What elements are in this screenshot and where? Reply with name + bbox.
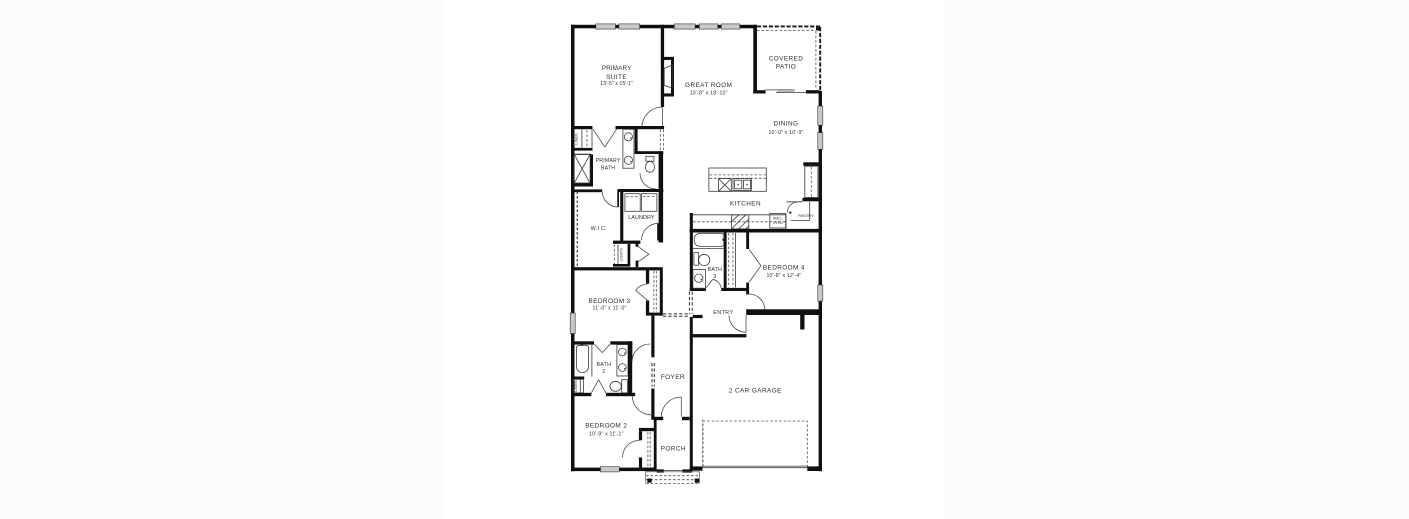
svg-text:BATH: BATH <box>708 267 723 273</box>
svg-text:PRIMARY: PRIMARY <box>602 65 632 72</box>
svg-text:OVEN: OVEN <box>773 221 783 225</box>
svg-text:BATH: BATH <box>601 165 615 171</box>
svg-text:SUITE: SUITE <box>606 74 627 81</box>
svg-text:2 CAR GARAGE: 2 CAR GARAGE <box>729 387 782 394</box>
svg-text:2: 2 <box>602 369 605 375</box>
svg-text:PATIO: PATIO <box>776 64 796 71</box>
svg-text:BATH: BATH <box>596 362 611 368</box>
svg-text:COVERED: COVERED <box>769 55 804 62</box>
svg-text:LINEN: LINEN <box>574 380 578 392</box>
svg-text:10'-0" x 10'-9": 10'-0" x 10'-9" <box>769 130 804 136</box>
svg-text:PORCH: PORCH <box>661 446 686 453</box>
svg-text:PRIMARY: PRIMARY <box>596 158 621 164</box>
svg-text:W.I.C.: W.I.C. <box>591 226 607 232</box>
svg-text:LAUNDRY: LAUNDRY <box>628 215 655 221</box>
svg-text:LINEN: LINEN <box>575 133 579 145</box>
svg-text:ENTRY: ENTRY <box>713 310 733 316</box>
svg-text:COATS: COATS <box>619 248 623 262</box>
svg-text:BEDROOM 3: BEDROOM 3 <box>589 298 631 305</box>
svg-text:3: 3 <box>713 274 716 280</box>
svg-text:KITCHEN: KITCHEN <box>730 200 761 207</box>
svg-text:BEDROOM 2: BEDROOM 2 <box>585 423 627 430</box>
svg-text:PANTRY: PANTRY <box>798 214 814 218</box>
svg-text:13'-5" x 15'-1": 13'-5" x 15'-1" <box>600 81 633 87</box>
svg-text:BEDROOM 4: BEDROOM 4 <box>763 265 805 272</box>
svg-text:10'-8" x 12'-4": 10'-8" x 12'-4" <box>766 273 801 279</box>
svg-text:GREAT ROOM: GREAT ROOM <box>685 82 732 89</box>
svg-text:DINING: DINING <box>774 121 799 128</box>
svg-text:13'-8" x 18'-10": 13'-8" x 18'-10" <box>690 91 728 97</box>
svg-text:FOYER: FOYER <box>661 374 685 381</box>
svg-text:11'-0" x 11'-0": 11'-0" x 11'-0" <box>593 306 627 312</box>
svg-text:10'-9" x 11'-1": 10'-9" x 11'-1" <box>589 431 624 437</box>
